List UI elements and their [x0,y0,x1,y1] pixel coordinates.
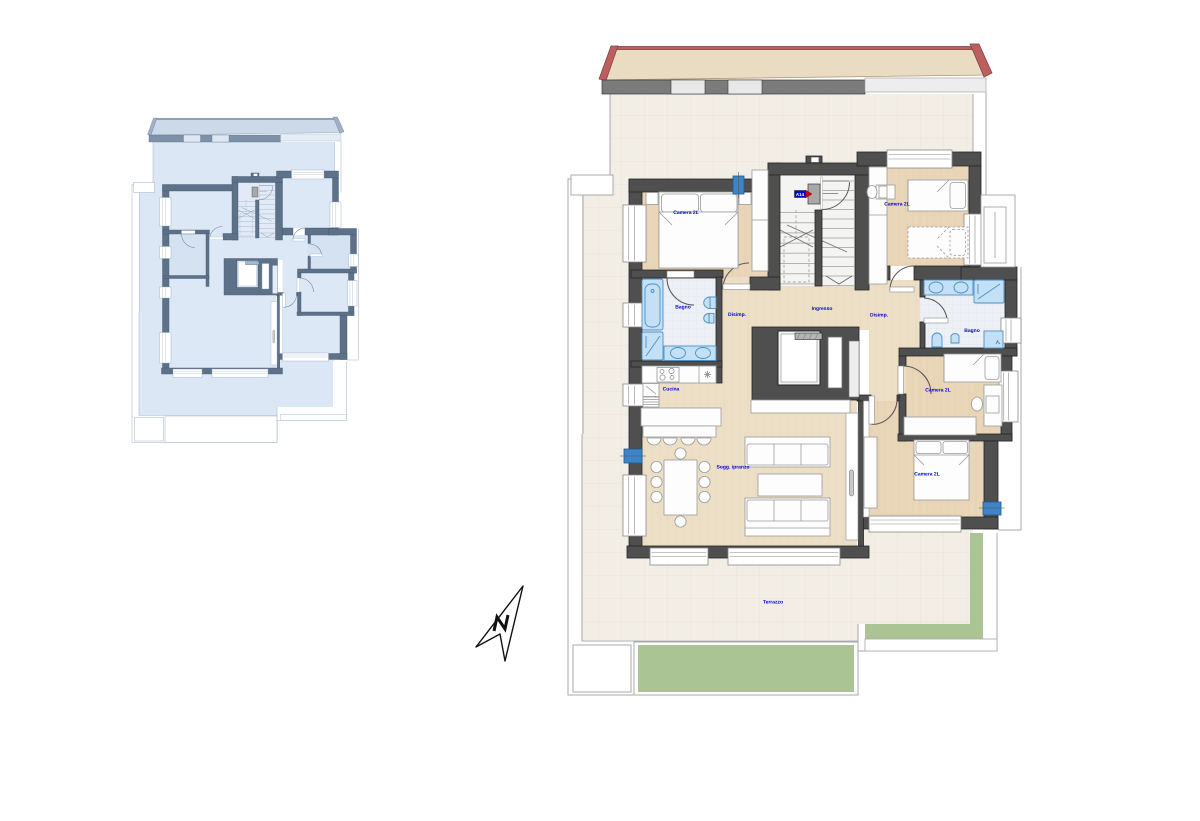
svg-text:Disimp.: Disimp. [870,313,889,319]
svg-text:Camera 2L: Camera 2L [925,388,951,394]
svg-text:Camera 2L: Camera 2L [884,202,910,208]
svg-text:Sogg. ipranzo: Sogg. ipranzo [716,465,749,471]
svg-text:Camera 2L: Camera 2L [673,210,699,216]
svg-text:Cucina: Cucina [663,387,680,393]
svg-text:Terrazzo: Terrazzo [763,600,783,606]
svg-text:A14: A14 [796,192,805,197]
svg-text:Ingresso: Ingresso [812,306,833,312]
svg-text:Bagno: Bagno [675,305,691,311]
svg-text:Disimp.: Disimp. [728,312,747,318]
svg-text:Camera 2L: Camera 2L [914,472,940,478]
svg-text:Bagno: Bagno [964,328,980,334]
